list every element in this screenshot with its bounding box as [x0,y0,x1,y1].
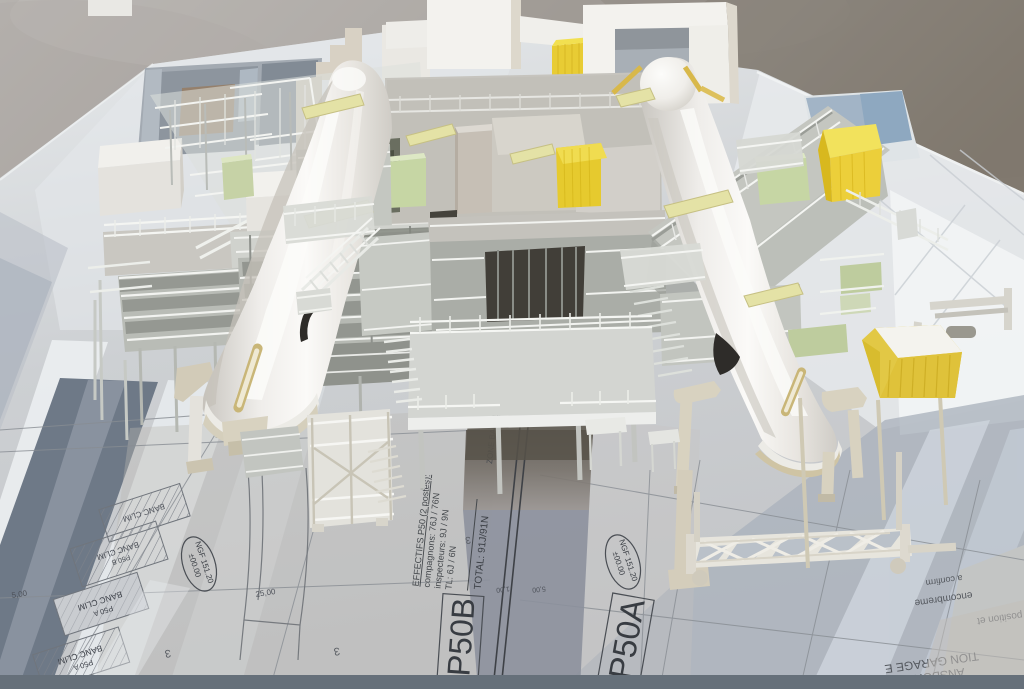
svg-text:5,00: 5,00 [532,585,546,593]
svg-text:1,00: 1,00 [496,585,510,593]
svg-text:P50B: P50B [440,597,481,678]
